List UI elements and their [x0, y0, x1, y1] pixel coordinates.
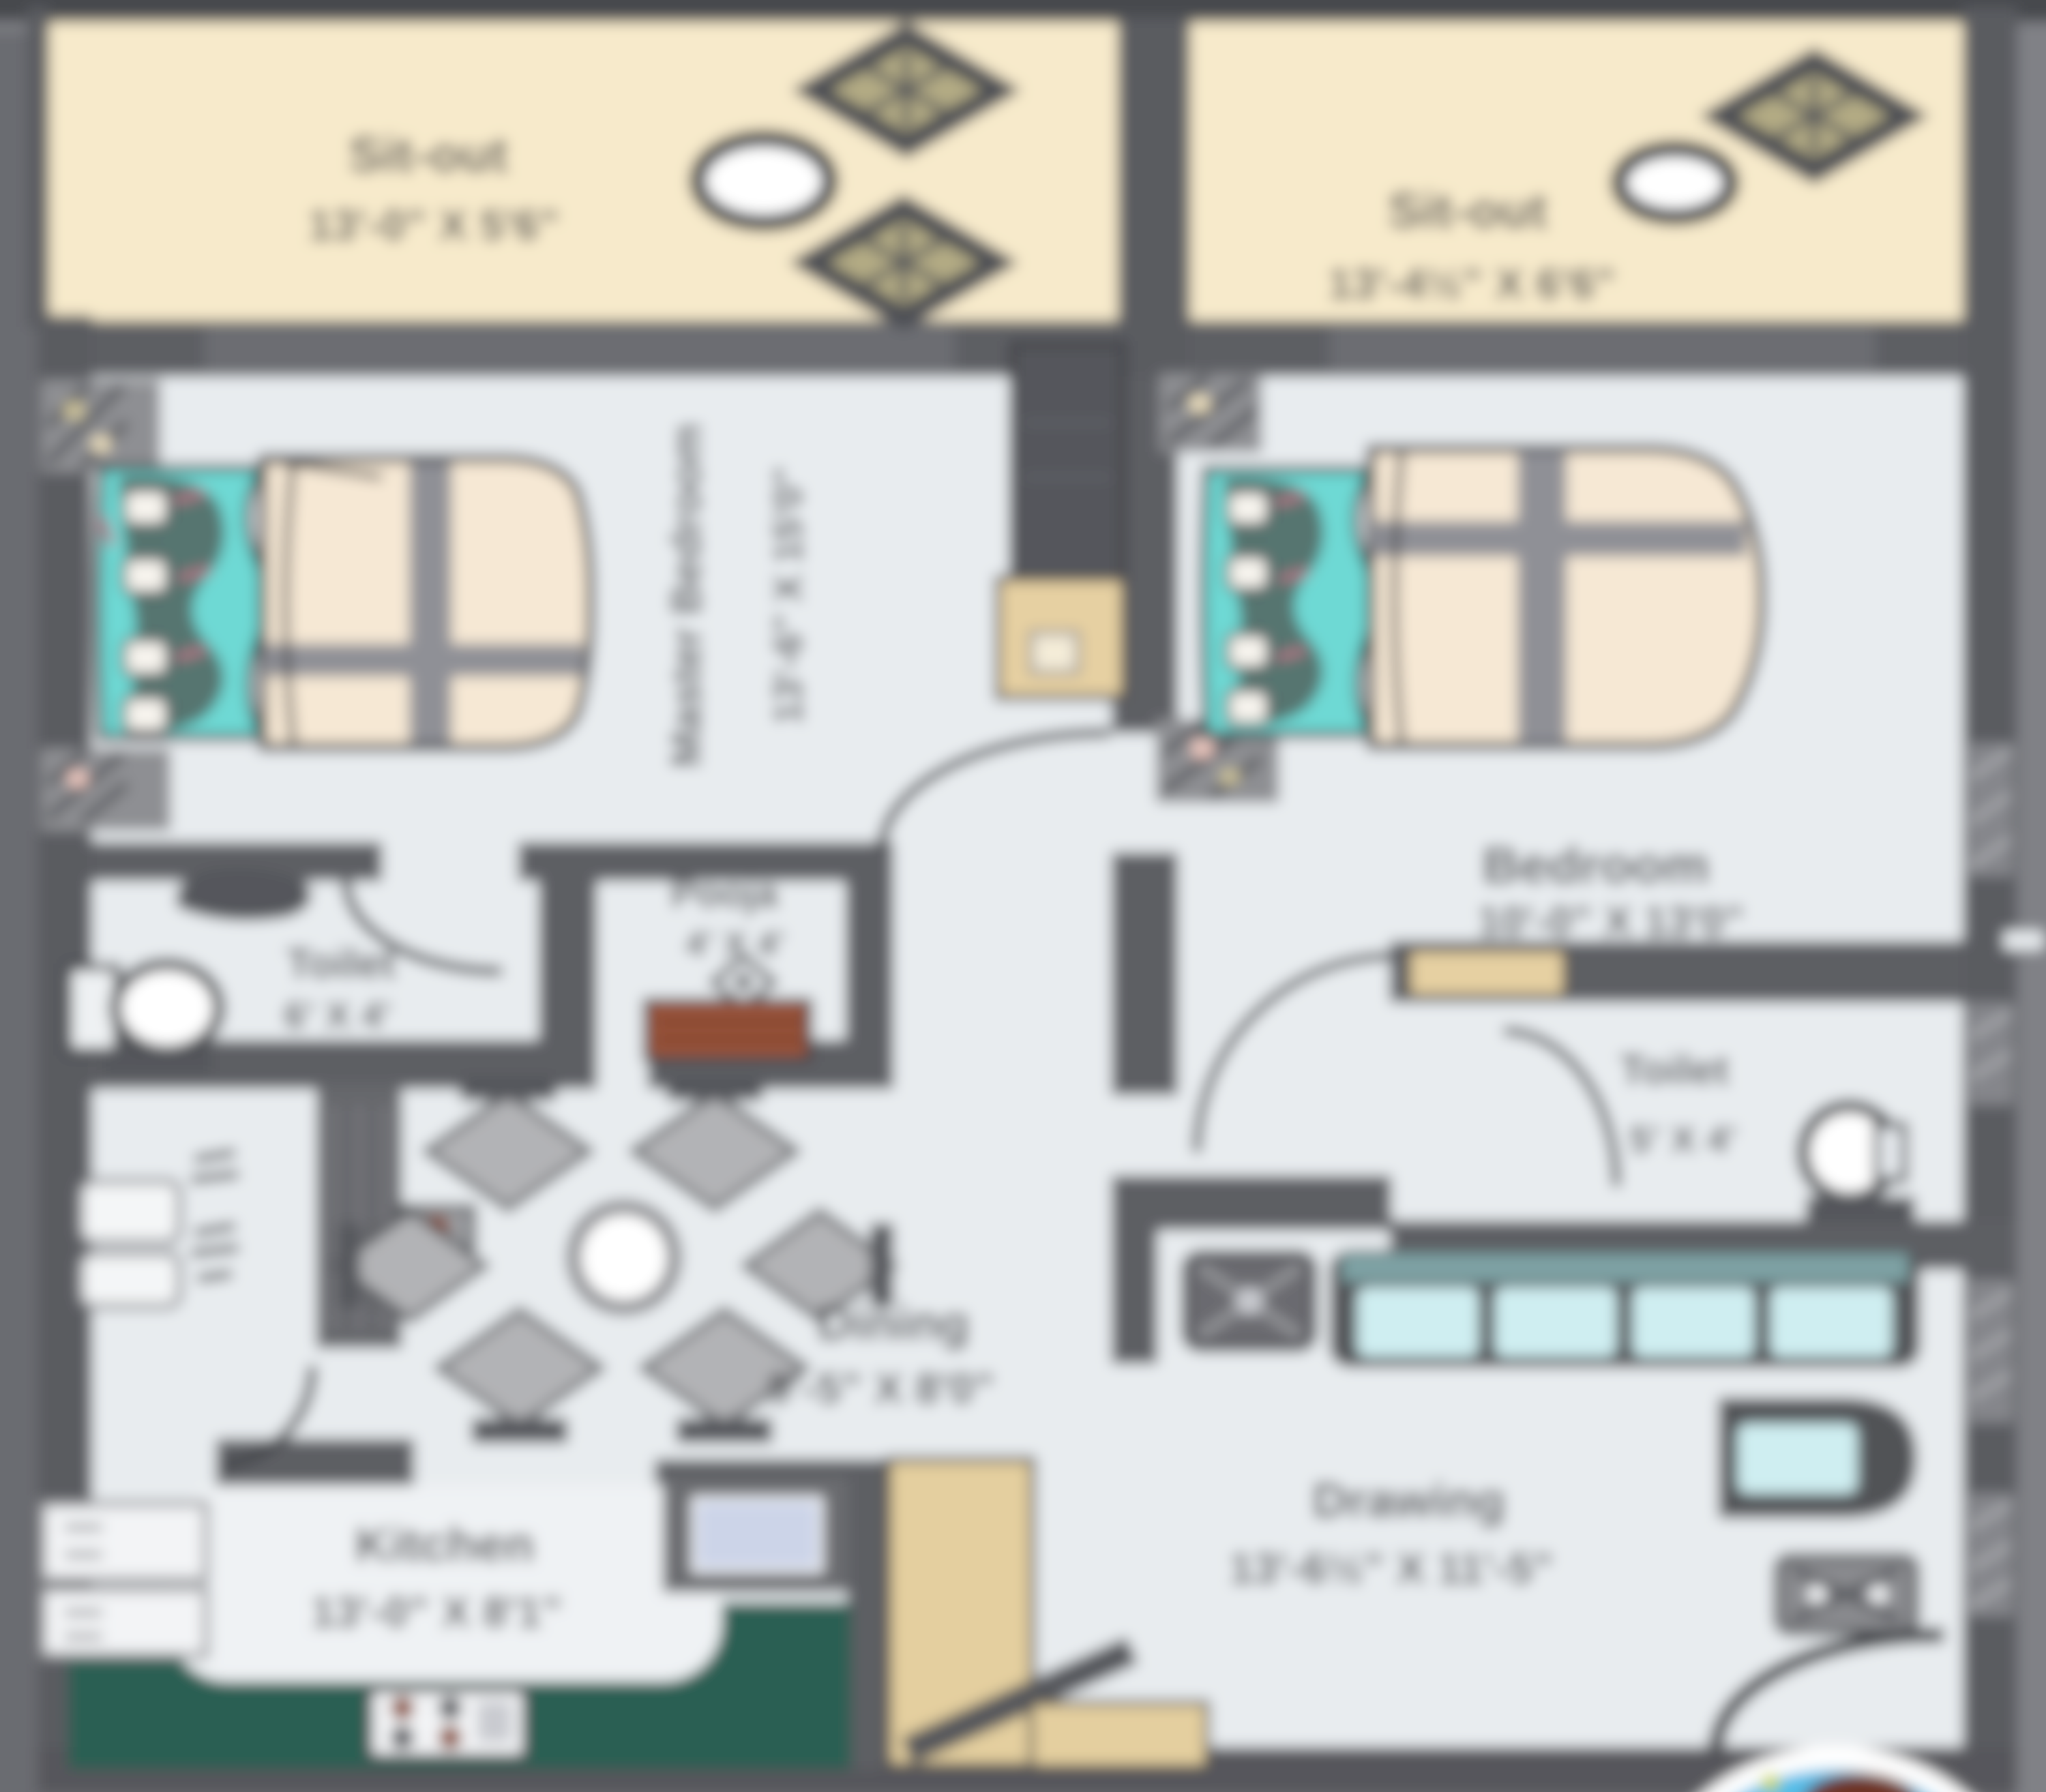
svg-text:13'-0" X 8'1": 13'-0" X 8'1"	[311, 1587, 563, 1637]
svg-text:4' X 4': 4' X 4'	[685, 925, 785, 964]
svg-text:Toilet: Toilet	[1620, 1047, 1730, 1094]
svg-text:13'-6½" X 11'-5": 13'-6½" X 11'-5"	[1229, 1544, 1553, 1593]
svg-text:Drawing: Drawing	[1312, 1474, 1506, 1528]
svg-text:Toilet: Toilet	[286, 940, 396, 987]
svg-text:13'-0" X 5'6": 13'-0" X 5'6"	[308, 200, 560, 250]
svg-text:Bedroom: Bedroom	[1482, 837, 1710, 895]
svg-text:Dining: Dining	[817, 1296, 970, 1351]
svg-text:Kitchen: Kitchen	[355, 1518, 535, 1572]
svg-text:13'-6" X 15'0": 13'-6" X 15'0"	[765, 466, 811, 725]
svg-text:6' X 4': 6' X 4'	[284, 994, 391, 1036]
svg-text:Sit-out: Sit-out	[349, 126, 508, 183]
svg-text:9'-5" X 8'0": 9'-5" X 8'0"	[767, 1364, 994, 1413]
svg-text:13'-4½" X 6'6": 13'-4½" X 6'6"	[1328, 259, 1616, 308]
svg-text:10'-0" X 13'0": 10'-0" X 13'0"	[1477, 898, 1745, 945]
svg-text:Sit-out: Sit-out	[1388, 182, 1547, 239]
svg-text:Master Bedroom: Master Bedroom	[662, 423, 711, 768]
svg-text:Pooja: Pooja	[670, 871, 779, 916]
svg-text:5' X 4': 5' X 4'	[1629, 1118, 1736, 1161]
